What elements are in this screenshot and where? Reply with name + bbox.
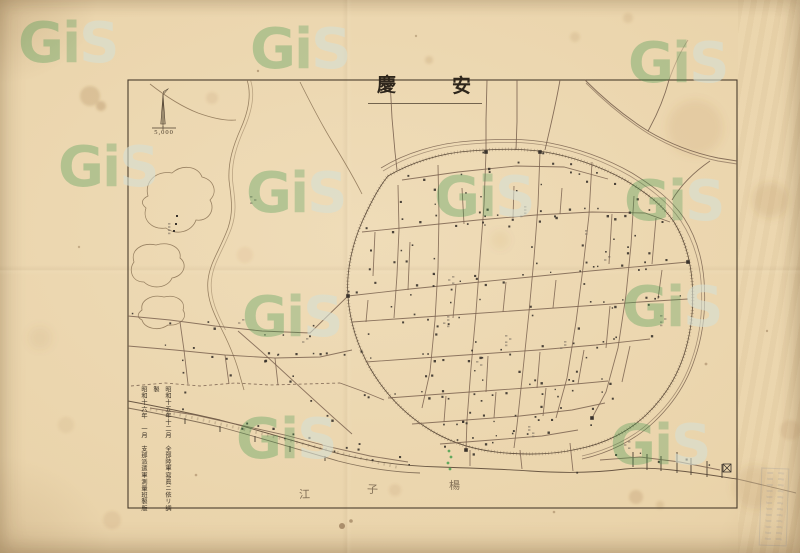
map-title-char-1: 安 <box>452 71 471 98</box>
scale-label: 5,000 <box>150 129 178 136</box>
credit-column-left: 昭和十六年 一月 支那派遣軍測量班製版 <box>137 386 149 514</box>
outer-ring-road <box>381 139 705 459</box>
archive-stamp <box>759 468 790 547</box>
map-title-char-2: 慶 <box>377 70 396 97</box>
stamp-text-column <box>764 472 772 542</box>
river-shoreline <box>128 401 796 493</box>
river-label-char-3: 江 <box>299 486 310 502</box>
lakes-and-streams <box>131 80 362 390</box>
map-sheet: 安 慶 5,000 昭和十五年十二月 全部陸軍寫眞ニ依リ調製 昭和十六年 一月 … <box>0 0 800 553</box>
map-canvas <box>0 0 800 553</box>
stamp-text-column <box>775 472 783 542</box>
river-piers <box>185 418 722 478</box>
credit-column-right: 昭和十五年十二月 全部陸軍寫眞ニ依リ調製 <box>149 386 173 514</box>
map-frame <box>128 80 737 508</box>
credits-block: 昭和十五年十二月 全部陸軍寫眞ニ依リ調製 昭和十六年 一月 支那派遣軍測量班製版 <box>137 386 173 514</box>
tiny-label-marks <box>168 196 666 449</box>
river-label-char-2: 子 <box>367 481 379 497</box>
city-gates <box>346 150 690 452</box>
landmark-symbol <box>723 464 731 472</box>
river-label-char-1: 楊 <box>449 477 461 493</box>
